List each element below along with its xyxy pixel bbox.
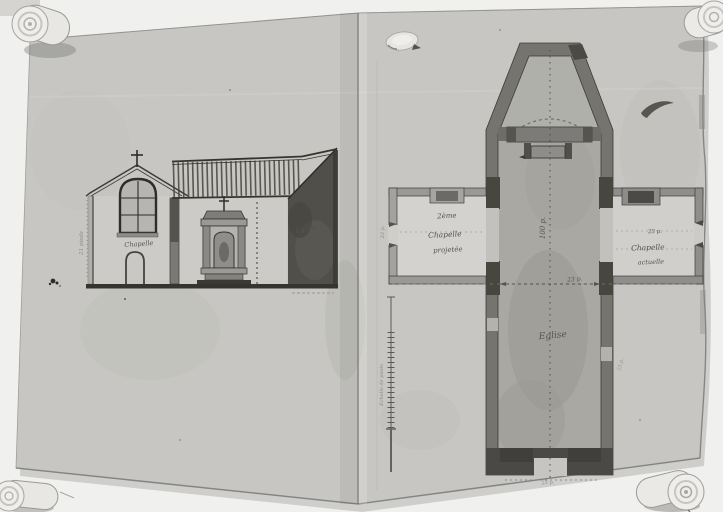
- crossing-dimension-label: 23 p.: [566, 275, 583, 283]
- altar-post-right: [565, 143, 572, 159]
- photograph: Chapelle 21 pieds Eglise: [0, 0, 723, 512]
- chapel-window: [117, 179, 158, 237]
- left-chapel-label-1: 2ème: [436, 212, 457, 221]
- chapel-door: [126, 252, 144, 284]
- window-sill: [117, 233, 158, 237]
- nave-window-gap: [487, 318, 498, 331]
- right-chapel-opening: [600, 208, 614, 262]
- left-chapel-side-dimension: 23 p.: [380, 225, 386, 239]
- speck: [179, 439, 181, 441]
- right-chapel-label-1: Chapelle: [631, 242, 665, 252]
- nave-length-dimension: 100 p.: [539, 217, 547, 239]
- altar-post-left: [524, 143, 531, 159]
- facade-buttress-left: [500, 448, 533, 462]
- weight-shadow: [678, 40, 718, 52]
- crossing-pier: [599, 177, 613, 209]
- left-chapel-opening: [485, 208, 499, 262]
- torn-edge-smudge: [700, 290, 706, 334]
- left-chapel: 2ème Chapelle projetée 23 p.: [380, 188, 486, 284]
- fold-highlight: [359, 13, 367, 504]
- right-chapel-niche: [694, 223, 704, 245]
- paper-stain: [380, 390, 460, 450]
- fold-shade: [340, 13, 358, 504]
- altar-base-cornice: [201, 268, 247, 274]
- paper-stain: [80, 280, 220, 380]
- height-dimension-label: 21 pieds: [79, 231, 85, 256]
- drawing-canvas: Chapelle 21 pieds Eglise: [0, 0, 723, 512]
- right-chapel-label-2: actuelle: [638, 258, 665, 267]
- speck: [229, 89, 231, 91]
- altar-cap: [203, 211, 245, 219]
- right-chapel-altar-recess: [628, 191, 654, 203]
- wash-blotch: [525, 130, 595, 230]
- crossing-pier: [486, 261, 500, 295]
- speck: [499, 29, 501, 31]
- altar-cornice: [201, 219, 247, 226]
- altar-column-left: [203, 226, 210, 268]
- left-chapel-niche: [388, 225, 398, 245]
- left-chapel-altar-recess: [436, 191, 458, 201]
- torn-edge-smudge: [699, 95, 705, 129]
- paper-stain: [30, 90, 130, 210]
- nave-window-gap: [601, 347, 612, 361]
- altar-rail-end: [583, 127, 592, 142]
- chapel-wall-section: [88, 196, 93, 284]
- crossing-pier: [599, 261, 613, 295]
- right-chapel: 23 p. Chapelle actuelle: [613, 188, 704, 284]
- altar-niche-shadow: [219, 242, 229, 262]
- altar-rail-end: [507, 127, 516, 142]
- altar-pedestal: [205, 274, 243, 280]
- crossing-pier: [486, 177, 500, 209]
- entrance-dimension-label: 23 p.: [540, 480, 554, 487]
- right-chapel-wall-bottom: [613, 276, 703, 284]
- altar-column-right: [238, 226, 245, 268]
- right-chapel-dimension: 23 p.: [647, 229, 662, 236]
- entrance-doorway: [534, 458, 567, 476]
- left-chapel-label-3: projetée: [433, 245, 463, 255]
- elevation-baseline: [86, 284, 338, 289]
- facade-buttress-right: [568, 448, 601, 462]
- elevation-pier: [170, 198, 179, 284]
- left-chapel-label-2: Chapelle: [428, 229, 463, 240]
- speck: [639, 419, 641, 421]
- altar-table: [531, 146, 565, 158]
- scale-label: Echelle de pieds: [379, 364, 385, 407]
- left-chapel-wall-bottom: [389, 276, 486, 284]
